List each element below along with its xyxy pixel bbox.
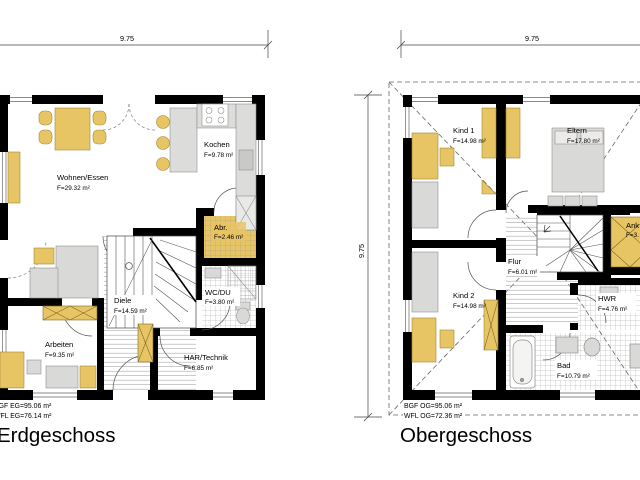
og-area-flur: F=6.01 m²	[508, 269, 537, 276]
eg-stat-wfl: WFL EG=76.14 m²	[0, 413, 52, 420]
og-area-kind1: F=14.98 m²	[453, 138, 486, 145]
og-label-kind2: Kind 2	[453, 291, 475, 300]
og-stat-bgf: BGF OG=95.06 m²	[404, 403, 463, 410]
eg-stat-bgf: BGF EG=95.06 m²	[0, 403, 52, 410]
og-stat-wfl: WFL OG=72.36 m²	[404, 413, 463, 420]
eg-label-har: HAR/Technik	[184, 353, 228, 362]
og-stairs	[537, 215, 603, 272]
eg-dim-top-label: 9.75	[120, 34, 134, 43]
floorplan-canvas: 9.75	[0, 0, 640, 480]
og-label-kind1: Kind 1	[453, 126, 475, 135]
og-title: Obergeschoss	[400, 424, 532, 447]
og-label-hwr: HWR	[598, 294, 617, 303]
og-dim-top-label: 9.75	[525, 34, 539, 43]
eg-area-diele: F=14.59 m²	[114, 308, 147, 315]
eg-area-har: F=6.85 m²	[184, 365, 213, 372]
eg-label-wc: WC/DU	[205, 288, 231, 297]
plan-obergeschoss: 9.75 9.75	[354, 30, 640, 447]
og-area-hwr: F=4.76 m²	[598, 306, 627, 313]
eg-area-kochen: F=9.78 m²	[204, 152, 233, 159]
og-area-eltern: F=17.80 m²	[567, 138, 600, 145]
eg-label-wohnen: Wohnen/Essen	[57, 173, 108, 182]
eg-area-arbeiten: F=9.35 m²	[45, 352, 74, 359]
plan-erdgeschoss: 9.75	[0, 30, 272, 447]
floorplan-sheet: 9.75	[0, 0, 640, 480]
eg-area-wc: F=3.80 m²	[205, 299, 234, 306]
eg-label-kochen: Kochen	[204, 140, 230, 149]
og-label-bad: Bad	[557, 361, 571, 370]
og-eltern-furniture	[506, 108, 604, 206]
og-area-kind2: F=14.98 m²	[453, 303, 486, 310]
eg-dining-set	[39, 108, 170, 171]
eg-area-abr: F=2.46 m²	[214, 234, 243, 241]
eg-label-diele: Diele	[114, 296, 131, 305]
eg-label-abr: Abr.	[214, 223, 228, 232]
eg-dimension-line-top	[0, 30, 272, 58]
og-area-bad: F=10.79 m²	[557, 373, 590, 380]
og-label-ank: Ank	[626, 221, 639, 230]
og-area-ank: F=3.	[626, 232, 639, 239]
og-label-flur: Flur	[508, 257, 522, 266]
og-label-eltern: Eltern	[567, 126, 587, 135]
og-dim-left-label: 9.75	[357, 244, 366, 258]
eg-area-wohnen: F=29.32 m²	[57, 185, 90, 192]
eg-label-arbeiten: Arbeiten	[45, 340, 73, 349]
eg-title: Erdgeschoss	[0, 424, 116, 447]
